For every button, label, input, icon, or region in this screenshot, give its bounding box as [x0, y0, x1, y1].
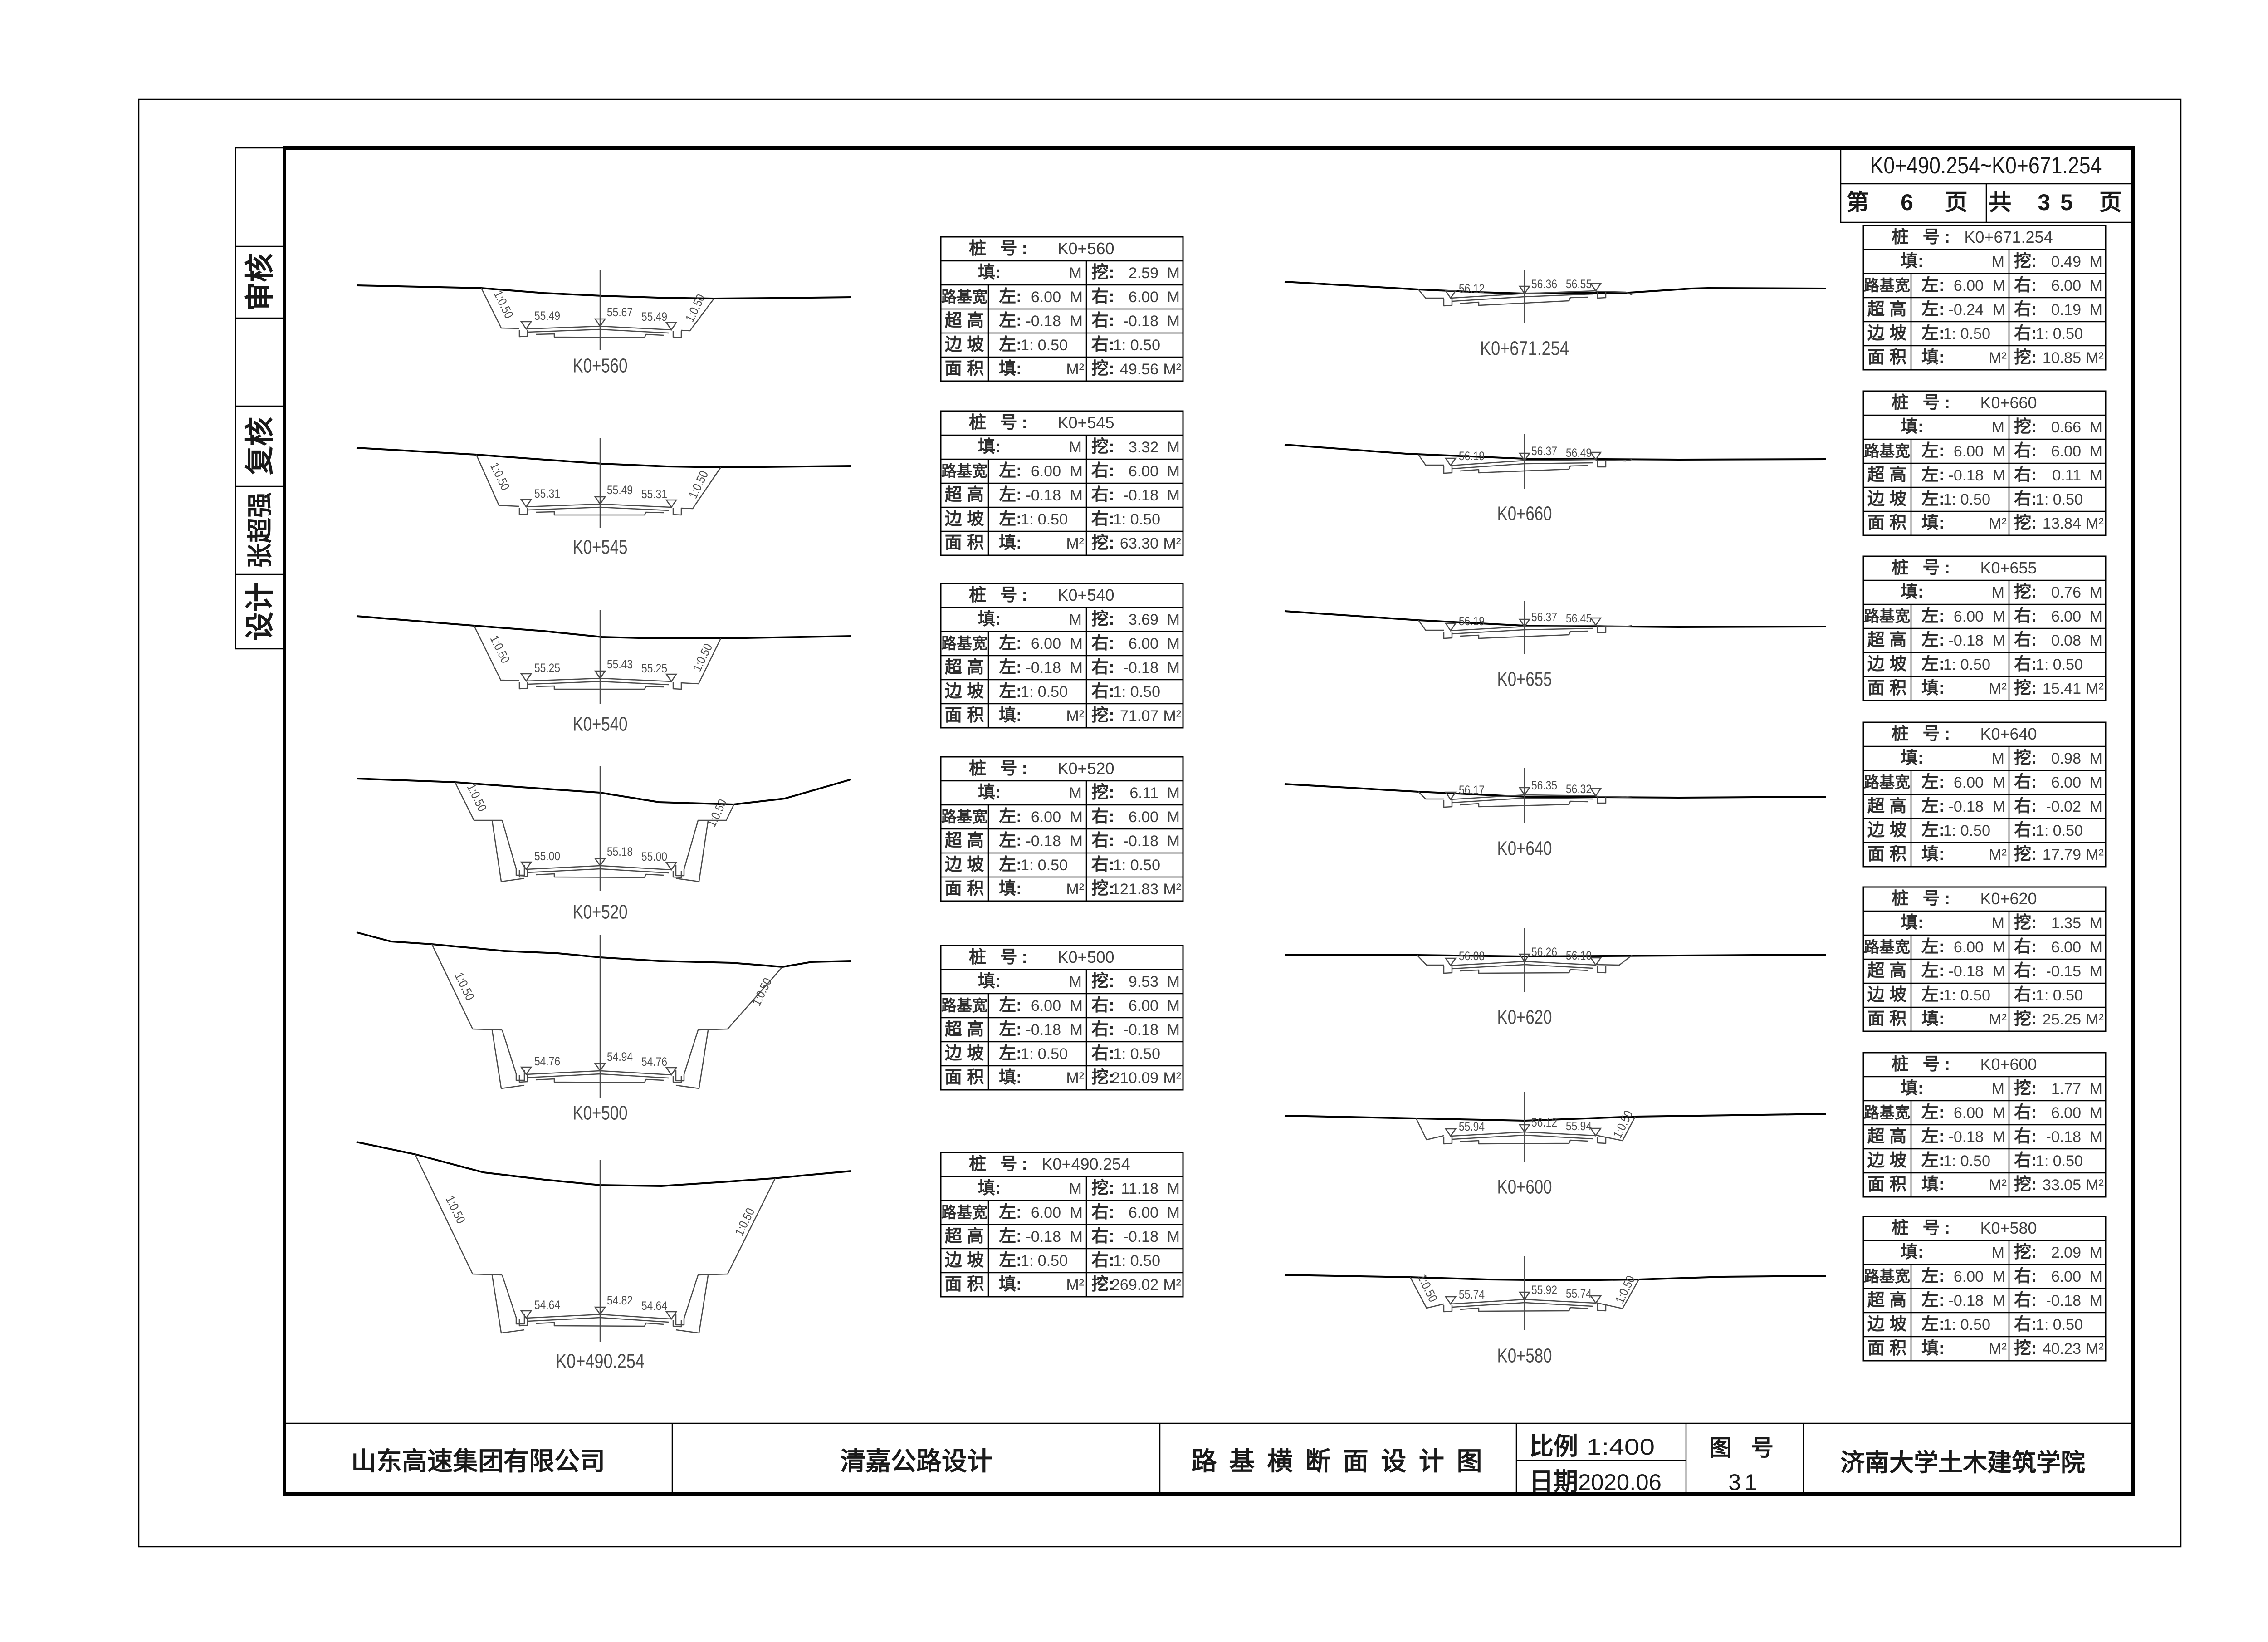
svg-text:6.00: 6.00: [1954, 1268, 1984, 1285]
svg-text:M: M: [1167, 997, 1180, 1015]
svg-text:右:: 右:: [1091, 658, 1114, 677]
svg-text:K0+545: K0+545: [573, 536, 628, 559]
svg-text:路基宽: 路基宽: [941, 288, 987, 306]
svg-text:1: 0.50: 1: 0.50: [1943, 987, 1990, 1004]
svg-text:填:: 填:: [978, 1179, 1001, 1198]
svg-text:左:: 左:: [999, 1227, 1022, 1246]
svg-text:-0.18: -0.18: [1124, 487, 1159, 504]
svg-text:K0+640: K0+640: [1980, 725, 2037, 743]
svg-text:M²: M²: [1163, 361, 1181, 378]
svg-text:55.25: 55.25: [534, 661, 560, 675]
svg-text:-0.18: -0.18: [1026, 833, 1061, 850]
svg-text:M: M: [1070, 635, 1083, 652]
svg-text:左:: 左:: [1921, 1151, 1945, 1170]
svg-text:1: 0.50: 1: 0.50: [1943, 491, 1990, 508]
svg-text:2.59: 2.59: [1129, 265, 1158, 282]
svg-text:M: M: [1070, 1021, 1083, 1039]
svg-text:25.25: 25.25: [2043, 1011, 2081, 1028]
svg-text:1: 0.50: 1: 0.50: [1021, 337, 1068, 354]
svg-text:71.07: 71.07: [1120, 707, 1158, 725]
svg-text:M²: M²: [1066, 707, 1084, 725]
svg-text:1: 0.50: 1: 0.50: [1943, 1152, 1990, 1170]
svg-text:40.23: 40.23: [2043, 1340, 2081, 1358]
svg-text:挖:: 挖:: [2014, 679, 2037, 698]
svg-text:路基宽: 路基宽: [1864, 1104, 1910, 1122]
svg-text:1: 0.50: 1: 0.50: [2036, 987, 2083, 1004]
svg-text:M: M: [1167, 611, 1180, 628]
svg-text:55.74: 55.74: [1566, 1287, 1592, 1300]
svg-text:M²: M²: [1163, 1069, 1181, 1087]
svg-text:1: 0.50: 1: 0.50: [2036, 656, 2083, 673]
svg-text:6.00: 6.00: [1129, 289, 1158, 306]
svg-text:M: M: [2090, 1292, 2102, 1309]
svg-text:超 高: 超 高: [1867, 1127, 1907, 1146]
svg-text:填:: 填:: [1921, 1339, 1945, 1358]
svg-text:右:: 右:: [2014, 1267, 2037, 1286]
svg-text:M²: M²: [1066, 1069, 1084, 1087]
svg-text:超 高: 超 高: [945, 1227, 984, 1246]
svg-text:M: M: [2090, 443, 2102, 460]
svg-text:右:: 右:: [2014, 937, 2037, 956]
svg-text:0.98: 0.98: [2051, 750, 2081, 767]
svg-text:K0+500: K0+500: [1057, 948, 1114, 966]
svg-text:面 积: 面 积: [945, 879, 984, 898]
svg-text:图 号: 图 号: [1709, 1435, 1780, 1461]
svg-text:左:: 左:: [999, 658, 1022, 677]
svg-text:左:: 左:: [1921, 1267, 1945, 1286]
svg-text:审核: 审核: [244, 253, 276, 311]
svg-text:M: M: [1069, 439, 1082, 456]
svg-text:0.11: 0.11: [2052, 467, 2081, 484]
svg-text:M: M: [1993, 963, 2005, 980]
svg-text:M²: M²: [1163, 535, 1181, 552]
svg-text:1: 0.50: 1: 0.50: [1943, 325, 1990, 343]
svg-text:路基宽: 路基宽: [1864, 277, 1910, 294]
svg-text:路基宽: 路基宽: [1864, 938, 1910, 956]
svg-text:-0.18: -0.18: [1124, 313, 1159, 330]
svg-text:-0.18: -0.18: [2046, 1292, 2082, 1309]
svg-text:左:: 左:: [999, 485, 1022, 505]
svg-text:56.26: 56.26: [1531, 945, 1557, 959]
svg-text:M: M: [1069, 1180, 1082, 1197]
svg-text:左:: 左:: [999, 831, 1022, 850]
svg-text:210.09: 210.09: [1111, 1069, 1158, 1087]
svg-text:桩 号:: 桩 号:: [1892, 559, 1955, 578]
svg-text:M²: M²: [1989, 1340, 2007, 1358]
svg-text:左:: 左:: [999, 461, 1022, 480]
svg-text:左:: 左:: [1921, 1291, 1945, 1310]
svg-text:55.74: 55.74: [1459, 1288, 1485, 1301]
svg-text:边 坡: 边 坡: [945, 510, 984, 529]
svg-text:路基宽: 路基宽: [1864, 442, 1910, 460]
svg-text:M²: M²: [1163, 1276, 1181, 1294]
svg-text:左:: 左:: [999, 682, 1022, 701]
svg-text:超 高: 超 高: [1867, 1291, 1907, 1310]
svg-text:右:: 右:: [1091, 807, 1114, 826]
svg-text:-0.18: -0.18: [2046, 1128, 2082, 1146]
svg-text:M: M: [1167, 1228, 1180, 1245]
svg-text:边 坡: 边 坡: [1867, 490, 1907, 509]
svg-text:M: M: [1993, 301, 2005, 319]
svg-text:-0.18: -0.18: [1026, 313, 1061, 330]
svg-text:M: M: [1167, 973, 1180, 990]
svg-text:M: M: [2090, 963, 2102, 980]
svg-text:左:: 左:: [1921, 1103, 1945, 1122]
svg-text:K0+490.254: K0+490.254: [1041, 1155, 1130, 1173]
svg-text:M: M: [1167, 809, 1180, 826]
svg-text:2.09: 2.09: [2051, 1244, 2081, 1261]
svg-text:填:: 填:: [978, 972, 1001, 991]
svg-text:清嘉公路设计: 清嘉公路设计: [840, 1447, 992, 1475]
svg-text:M: M: [1993, 277, 2005, 294]
svg-text:左:: 左:: [1921, 655, 1945, 674]
svg-text:右:: 右:: [2014, 1291, 2037, 1310]
svg-text:6.00: 6.00: [1954, 277, 1984, 294]
svg-text:填:: 填:: [978, 263, 1001, 282]
svg-text:左:: 左:: [1921, 797, 1945, 816]
svg-text:31: 31: [1728, 1470, 1761, 1495]
svg-text:M²: M²: [2086, 349, 2104, 367]
svg-text:填:: 填:: [1921, 1175, 1945, 1194]
svg-text:M: M: [1167, 659, 1180, 676]
svg-text:K0+660: K0+660: [1980, 393, 2037, 412]
svg-text:左:: 左:: [1921, 324, 1945, 343]
svg-text:1: 0.50: 1: 0.50: [1113, 511, 1160, 528]
svg-text:右:: 右:: [2014, 1151, 2037, 1170]
svg-text:填:: 填:: [1901, 749, 1924, 768]
svg-text:M: M: [1167, 1180, 1180, 1197]
svg-text:K0+540: K0+540: [573, 713, 628, 735]
svg-text:边 坡: 边 坡: [1867, 655, 1907, 674]
svg-text:左:: 左:: [999, 996, 1022, 1015]
svg-text:1: 0.50: 1: 0.50: [1113, 683, 1160, 701]
svg-text:右:: 右:: [2014, 985, 2037, 1005]
svg-text:面 积: 面 积: [1867, 679, 1907, 698]
svg-text:M: M: [1070, 1228, 1083, 1245]
svg-text:挖:: 挖:: [2014, 417, 2037, 436]
svg-text:挖:: 挖:: [2014, 514, 2037, 533]
svg-text:填:: 填:: [1921, 679, 1945, 698]
svg-text:0.49: 0.49: [2051, 253, 2081, 270]
svg-text:M²: M²: [1989, 515, 2007, 532]
svg-text:1: 0.50: 1: 0.50: [1021, 1252, 1068, 1269]
svg-text:K0+560: K0+560: [1057, 239, 1114, 258]
svg-text:M²: M²: [1989, 846, 2007, 863]
svg-text:M: M: [1070, 809, 1083, 826]
svg-text:挖:: 挖:: [1091, 1179, 1114, 1198]
svg-text:6.00: 6.00: [2051, 1268, 2081, 1285]
svg-text:10.85: 10.85: [2043, 349, 2081, 367]
svg-text:M: M: [1167, 439, 1180, 456]
svg-text:桩 号:: 桩 号:: [1892, 393, 1955, 412]
svg-text:挖:: 挖:: [2014, 1243, 2037, 1262]
svg-text:1: 0.50: 1: 0.50: [1943, 822, 1990, 839]
svg-text:右:: 右:: [2014, 300, 2037, 319]
svg-text:1:0.50: 1:0.50: [452, 970, 477, 1003]
svg-text:填:: 填:: [999, 1068, 1022, 1087]
svg-text:K0+660: K0+660: [1497, 503, 1552, 525]
svg-text:1: 0.50: 1: 0.50: [2036, 1316, 2083, 1333]
svg-text:1: 0.50: 1: 0.50: [1113, 337, 1160, 354]
svg-text:右:: 右:: [1091, 831, 1114, 850]
svg-text:桩 号:: 桩 号:: [969, 239, 1032, 258]
svg-text:填:: 填:: [999, 879, 1022, 898]
svg-text:超 高: 超 高: [945, 658, 984, 677]
svg-text:左:: 左:: [1921, 300, 1945, 319]
svg-text:M: M: [1993, 1268, 2005, 1285]
svg-text:M: M: [1069, 265, 1082, 282]
svg-text:6.00: 6.00: [2051, 277, 2081, 294]
svg-text:超 高: 超 高: [1867, 300, 1907, 319]
svg-text:挖:: 挖:: [1091, 706, 1114, 725]
svg-text:K0+655: K0+655: [1497, 668, 1552, 691]
svg-text:右:: 右:: [2014, 655, 2037, 674]
svg-text:55.94: 55.94: [1566, 1119, 1592, 1133]
svg-text:左:: 左:: [1921, 490, 1945, 509]
svg-text:M: M: [1993, 1292, 2005, 1309]
svg-text:55.31: 55.31: [534, 487, 560, 500]
svg-text:右:: 右:: [1091, 485, 1114, 505]
svg-text:15.41: 15.41: [2043, 680, 2081, 697]
svg-text:56.45: 56.45: [1566, 612, 1592, 625]
svg-text:左:: 左:: [1921, 961, 1945, 980]
svg-text:56.49: 56.49: [1566, 446, 1592, 460]
svg-text:63.30: 63.30: [1120, 535, 1158, 552]
svg-text:左:: 左:: [999, 311, 1022, 330]
svg-text:右:: 右:: [2014, 490, 2037, 509]
svg-text:-0.18: -0.18: [1124, 1228, 1159, 1245]
svg-text:挖:: 挖:: [2014, 252, 2037, 271]
svg-text:填:: 填:: [999, 706, 1022, 725]
svg-text:M: M: [1167, 1021, 1180, 1039]
svg-text:M: M: [2090, 1244, 2102, 1261]
svg-text:1:0.50: 1:0.50: [1613, 1274, 1637, 1306]
svg-text:M: M: [1993, 774, 2005, 791]
svg-text:55.00: 55.00: [534, 849, 560, 863]
svg-text:济南大学土木建筑学院: 济南大学土木建筑学院: [1840, 1449, 2085, 1476]
svg-text:M: M: [1070, 289, 1083, 306]
svg-text:填:: 填:: [1901, 583, 1924, 602]
svg-text:路基宽: 路基宽: [941, 1204, 987, 1221]
svg-text:右:: 右:: [1091, 311, 1114, 330]
svg-text:6.00: 6.00: [1954, 939, 1984, 956]
svg-text:55.49: 55.49: [641, 310, 667, 323]
svg-text:1: 0.50: 1: 0.50: [2036, 822, 2083, 839]
svg-text:M: M: [2090, 798, 2102, 815]
svg-text:挖:: 挖:: [2014, 348, 2037, 367]
svg-text:M²: M²: [1066, 361, 1084, 378]
svg-text:右:: 右:: [1091, 1227, 1114, 1246]
svg-text:右:: 右:: [2014, 441, 2037, 461]
svg-text:挖:: 挖:: [2014, 845, 2037, 864]
svg-text:55.49: 55.49: [534, 309, 560, 323]
svg-text:填:: 填:: [1921, 845, 1945, 864]
svg-text:M: M: [1069, 973, 1082, 990]
svg-text:桩 号:: 桩 号:: [1892, 889, 1955, 908]
svg-text:9.53: 9.53: [1129, 973, 1158, 990]
svg-text:填:: 填:: [1921, 514, 1945, 533]
svg-text:M²: M²: [1989, 1176, 2007, 1194]
svg-text:右:: 右:: [1091, 510, 1114, 529]
svg-text:K0+490.254: K0+490.254: [556, 1350, 645, 1372]
svg-text:右:: 右:: [2014, 276, 2037, 295]
svg-text:56.19: 56.19: [1459, 449, 1485, 463]
svg-text:右:: 右:: [1091, 335, 1114, 354]
svg-text:54.76: 54.76: [534, 1054, 560, 1068]
svg-text:11.18: 11.18: [1121, 1180, 1158, 1197]
svg-text:56.36: 56.36: [1531, 277, 1557, 291]
svg-text:K0+490.254~K0+671.254: K0+490.254~K0+671.254: [1870, 152, 2102, 179]
svg-text:左:: 左:: [999, 1044, 1022, 1063]
svg-text:-0.24: -0.24: [1949, 301, 1984, 319]
svg-text:0.19: 0.19: [2051, 301, 2081, 319]
svg-text:M: M: [2090, 774, 2102, 791]
svg-text:挖:: 挖:: [1091, 437, 1114, 456]
svg-text:左:: 左:: [1921, 441, 1945, 461]
svg-text:左:: 左:: [999, 335, 1022, 354]
svg-text:56.10: 56.10: [1566, 949, 1592, 962]
svg-text:M: M: [1070, 833, 1083, 850]
svg-text:设计: 设计: [244, 583, 276, 641]
svg-text:M: M: [2090, 608, 2102, 625]
svg-text:-0.15: -0.15: [2046, 963, 2082, 980]
svg-text:K0+545: K0+545: [1057, 413, 1114, 432]
svg-text:面 积: 面 积: [945, 359, 984, 378]
svg-text:M²: M²: [1163, 881, 1181, 898]
svg-text:1: 0.50: 1: 0.50: [1943, 656, 1990, 673]
svg-text:面 积: 面 积: [1867, 1339, 1907, 1358]
svg-text:M: M: [1070, 997, 1083, 1015]
svg-text:49.56: 49.56: [1120, 361, 1158, 378]
svg-text:边 坡: 边 坡: [945, 1044, 984, 1063]
svg-text:-0.18: -0.18: [1026, 487, 1061, 504]
svg-text:M: M: [2090, 632, 2102, 649]
svg-text:M: M: [2090, 467, 2102, 484]
svg-text:填:: 填:: [1901, 1243, 1924, 1262]
svg-text:桩 号:: 桩 号:: [1892, 1219, 1955, 1238]
svg-text:左:: 左:: [999, 510, 1022, 529]
svg-text:1:0.50: 1:0.50: [704, 797, 729, 829]
svg-text:M: M: [1992, 1244, 2004, 1261]
svg-text:M: M: [2090, 1128, 2102, 1146]
svg-text:填:: 填:: [1901, 252, 1924, 271]
svg-text:面 积: 面 积: [945, 1275, 984, 1294]
svg-text:右:: 右:: [2014, 961, 2037, 980]
svg-text:M: M: [1167, 289, 1180, 306]
svg-text:M: M: [1992, 750, 2004, 767]
svg-text:左:: 左:: [999, 287, 1022, 306]
svg-text:右:: 右:: [2014, 607, 2037, 626]
svg-text:33.05: 33.05: [2043, 1176, 2081, 1194]
svg-text:1: 0.50: 1: 0.50: [2036, 325, 2083, 343]
svg-text:左:: 左:: [1921, 466, 1945, 485]
svg-text:右:: 右:: [1091, 1203, 1114, 1222]
svg-text:挖:: 挖:: [2014, 1339, 2037, 1358]
svg-text:-0.18: -0.18: [1949, 798, 1984, 815]
svg-text:17.79: 17.79: [2043, 846, 2081, 863]
svg-text:55.94: 55.94: [1459, 1120, 1485, 1133]
svg-text:M: M: [1992, 253, 2004, 270]
svg-text:挖:: 挖:: [1091, 359, 1114, 378]
svg-text:右:: 右:: [2014, 1127, 2037, 1146]
svg-text:M: M: [1167, 265, 1180, 282]
svg-text:-0.18: -0.18: [1949, 632, 1984, 649]
svg-text:填:: 填:: [978, 437, 1001, 456]
svg-text:填:: 填:: [999, 534, 1022, 553]
svg-text:左:: 左:: [1921, 1315, 1945, 1334]
svg-text:面 积: 面 积: [945, 706, 984, 725]
svg-text:右:: 右:: [1091, 1044, 1114, 1063]
svg-text:54.82: 54.82: [607, 1294, 633, 1307]
svg-text:6.00: 6.00: [1031, 463, 1061, 480]
svg-text:M²: M²: [1163, 707, 1181, 725]
svg-text:1:0.50: 1:0.50: [749, 976, 774, 1008]
svg-text:1:0.50: 1:0.50: [686, 469, 711, 501]
svg-text:M: M: [2090, 419, 2102, 436]
svg-text:填:: 填:: [1901, 417, 1924, 436]
svg-text:左:: 左:: [1921, 821, 1945, 840]
svg-text:6.00: 6.00: [2051, 774, 2081, 791]
svg-text:右:: 右:: [1091, 1020, 1114, 1039]
svg-text:M: M: [1167, 635, 1180, 652]
svg-text:超 高: 超 高: [945, 485, 984, 505]
svg-text:1.35: 1.35: [2051, 915, 2081, 932]
svg-text:6.00: 6.00: [1031, 1204, 1061, 1221]
svg-text:填:: 填:: [1901, 1079, 1924, 1098]
svg-text:M: M: [1993, 632, 2005, 649]
svg-text:超 高: 超 高: [1867, 961, 1907, 980]
svg-text:挖:: 挖:: [2014, 583, 2037, 602]
svg-text:M: M: [1167, 487, 1180, 504]
svg-text:3.32: 3.32: [1129, 439, 1158, 456]
svg-text:M: M: [1167, 1204, 1180, 1221]
svg-text:左:: 左:: [999, 1203, 1022, 1222]
svg-text:M: M: [1992, 1080, 2004, 1098]
svg-text:超 高: 超 高: [1867, 466, 1907, 485]
svg-text:M: M: [1070, 463, 1083, 480]
svg-text:M²: M²: [2086, 1176, 2104, 1194]
svg-text:日期: 日期: [1529, 1468, 1578, 1495]
svg-text:6.00: 6.00: [1129, 997, 1158, 1015]
svg-text:6.00: 6.00: [1129, 635, 1158, 652]
svg-text:左:: 左:: [999, 855, 1022, 874]
svg-text:山东高速集团有限公司: 山东高速集团有限公司: [351, 1447, 605, 1475]
svg-text:M²: M²: [2086, 1340, 2104, 1358]
svg-text:面 积: 面 积: [1867, 514, 1907, 533]
svg-text:6.00: 6.00: [1031, 289, 1061, 306]
svg-text:55.25: 55.25: [641, 662, 667, 675]
svg-text:路基宽: 路基宽: [1864, 608, 1910, 625]
svg-text:填:: 填:: [1901, 913, 1924, 932]
svg-text:边 坡: 边 坡: [945, 1251, 984, 1270]
svg-text:-0.18: -0.18: [1949, 963, 1984, 980]
svg-text:K0+580: K0+580: [1980, 1219, 2037, 1237]
svg-text:M²: M²: [1066, 1276, 1084, 1294]
svg-text:边 坡: 边 坡: [1867, 985, 1907, 1005]
svg-text:挖:: 挖:: [1091, 534, 1114, 553]
svg-text:6.00: 6.00: [1031, 635, 1061, 652]
svg-text:右:: 右:: [1091, 996, 1114, 1015]
svg-text:M: M: [2090, 277, 2102, 294]
svg-text:55.43: 55.43: [607, 657, 633, 671]
svg-text:填:: 填:: [999, 359, 1022, 378]
svg-text:56.19: 56.19: [1459, 614, 1485, 628]
svg-text:6.00: 6.00: [1954, 443, 1984, 460]
svg-text:54.76: 54.76: [641, 1055, 667, 1069]
svg-text:-0.02: -0.02: [2046, 798, 2082, 815]
svg-text:56.32: 56.32: [1566, 782, 1592, 796]
svg-text:M: M: [1070, 487, 1083, 504]
